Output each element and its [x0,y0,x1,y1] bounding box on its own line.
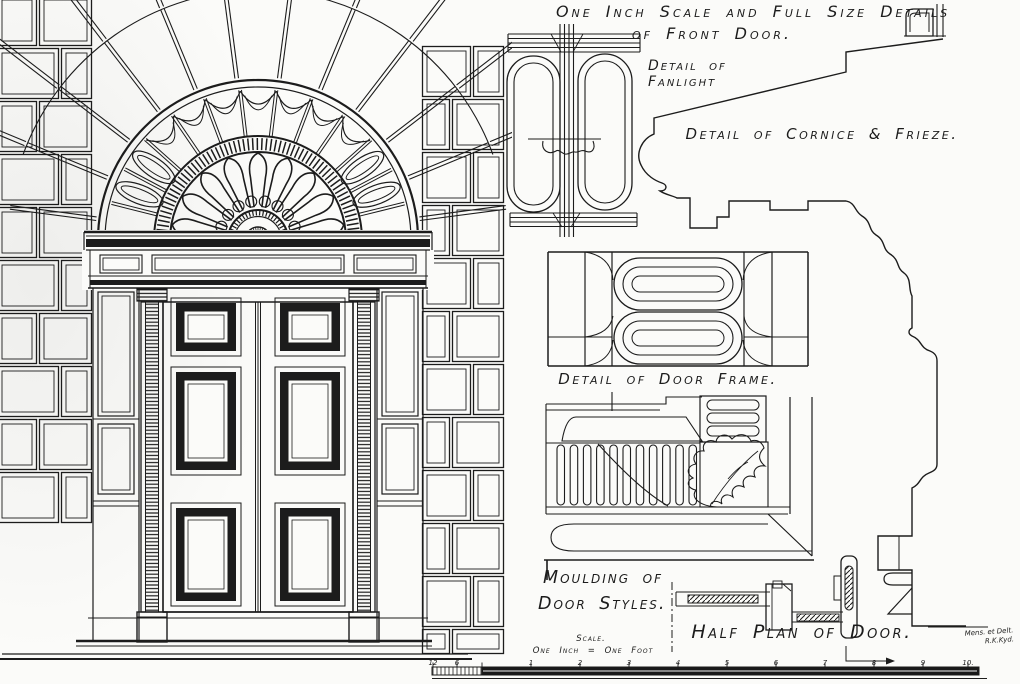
double-door-leaves [163,298,353,612]
scale-tick-5: 5 [725,659,729,667]
scale-tick-7: 7 [823,659,827,667]
fanlight-detail-drawing [507,24,640,237]
graphic-scale-bar [432,663,987,679]
scale-tick-8: 8 [872,659,876,667]
label-detail-of-door-frame: Detail of Door Frame. [558,371,777,388]
entablature-frieze [82,230,434,290]
scale-tick-4: 4 [676,659,680,667]
scale-tick-3: 3 [627,659,631,667]
label-half-plan-of-door: Half Plan of Door. [691,622,912,644]
architectural-plate: One Inch Scale and Full Size Details of … [0,0,1020,684]
door-styles-moulding-drawing [544,392,814,580]
cornice-frieze-profile-drawing [639,4,966,665]
door-frame-detail-drawing [548,252,808,366]
draughtsman-signature: Mens. et Delt. R.K.Kyd. [965,626,1015,648]
scale-tick-1: 1 [529,659,533,667]
scale-tick-2: 2 [578,659,582,667]
label-moulding-of: Moulding of [543,568,663,588]
sheet-title-line1: One Inch Scale and Full Size Details [556,3,950,21]
label-detail-of-fanlight: Detail of Fanlight [648,58,727,90]
label-detail-of-cornice-frieze: Detail of Cornice & Frieze. [686,126,959,143]
label-scale-caption: Scale. [576,635,606,645]
scale-tick-10: 10. [962,659,973,667]
scale-tick-12: 12 [429,659,438,667]
label-scale-equation: One Inch = One Foot [533,647,654,657]
label-door-styles: Door Styles. [538,594,666,614]
threshold-steps [0,612,472,659]
sheet-title-line2: of Front Door. [632,25,792,43]
label-detail-of-fanlight-line2: Fanlight [648,74,727,90]
rusticated-wall-blocks [0,0,504,654]
scale-tick-9: 9 [921,659,925,667]
line-art [0,0,1020,684]
label-detail-of-fanlight-line1: Detail of [648,58,727,74]
scale-tick-6: 6 [455,659,459,667]
scale-tick-6ft: 6 [774,659,778,667]
